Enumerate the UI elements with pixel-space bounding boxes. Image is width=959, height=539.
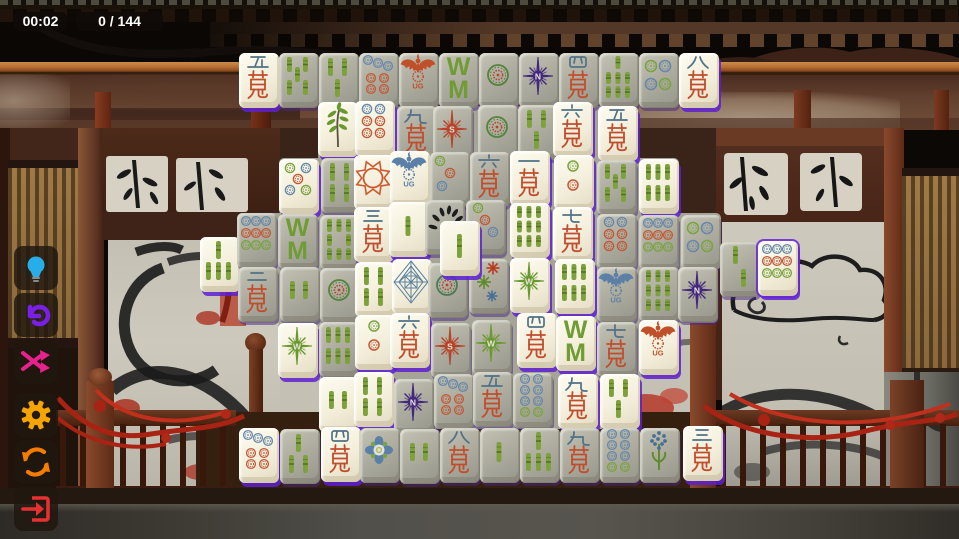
- svg-text:UG: UG: [610, 296, 621, 305]
- svg-text:N: N: [694, 286, 700, 296]
- svg-text:N: N: [410, 398, 416, 408]
- svg-text:W: W: [525, 277, 534, 287]
- svg-text:M: M: [287, 237, 308, 262]
- svg-text:M: M: [448, 76, 469, 101]
- svg-text:S: S: [449, 125, 455, 135]
- svg-text:W: W: [487, 339, 496, 349]
- svg-text:W: W: [293, 342, 302, 352]
- svg-text:N: N: [535, 72, 541, 82]
- svg-text:UG: UG: [403, 180, 414, 189]
- svg-text:S: S: [447, 342, 453, 352]
- svg-text:UG: UG: [412, 82, 423, 91]
- svg-text:M: M: [565, 339, 586, 364]
- svg-text:UG: UG: [652, 349, 663, 358]
